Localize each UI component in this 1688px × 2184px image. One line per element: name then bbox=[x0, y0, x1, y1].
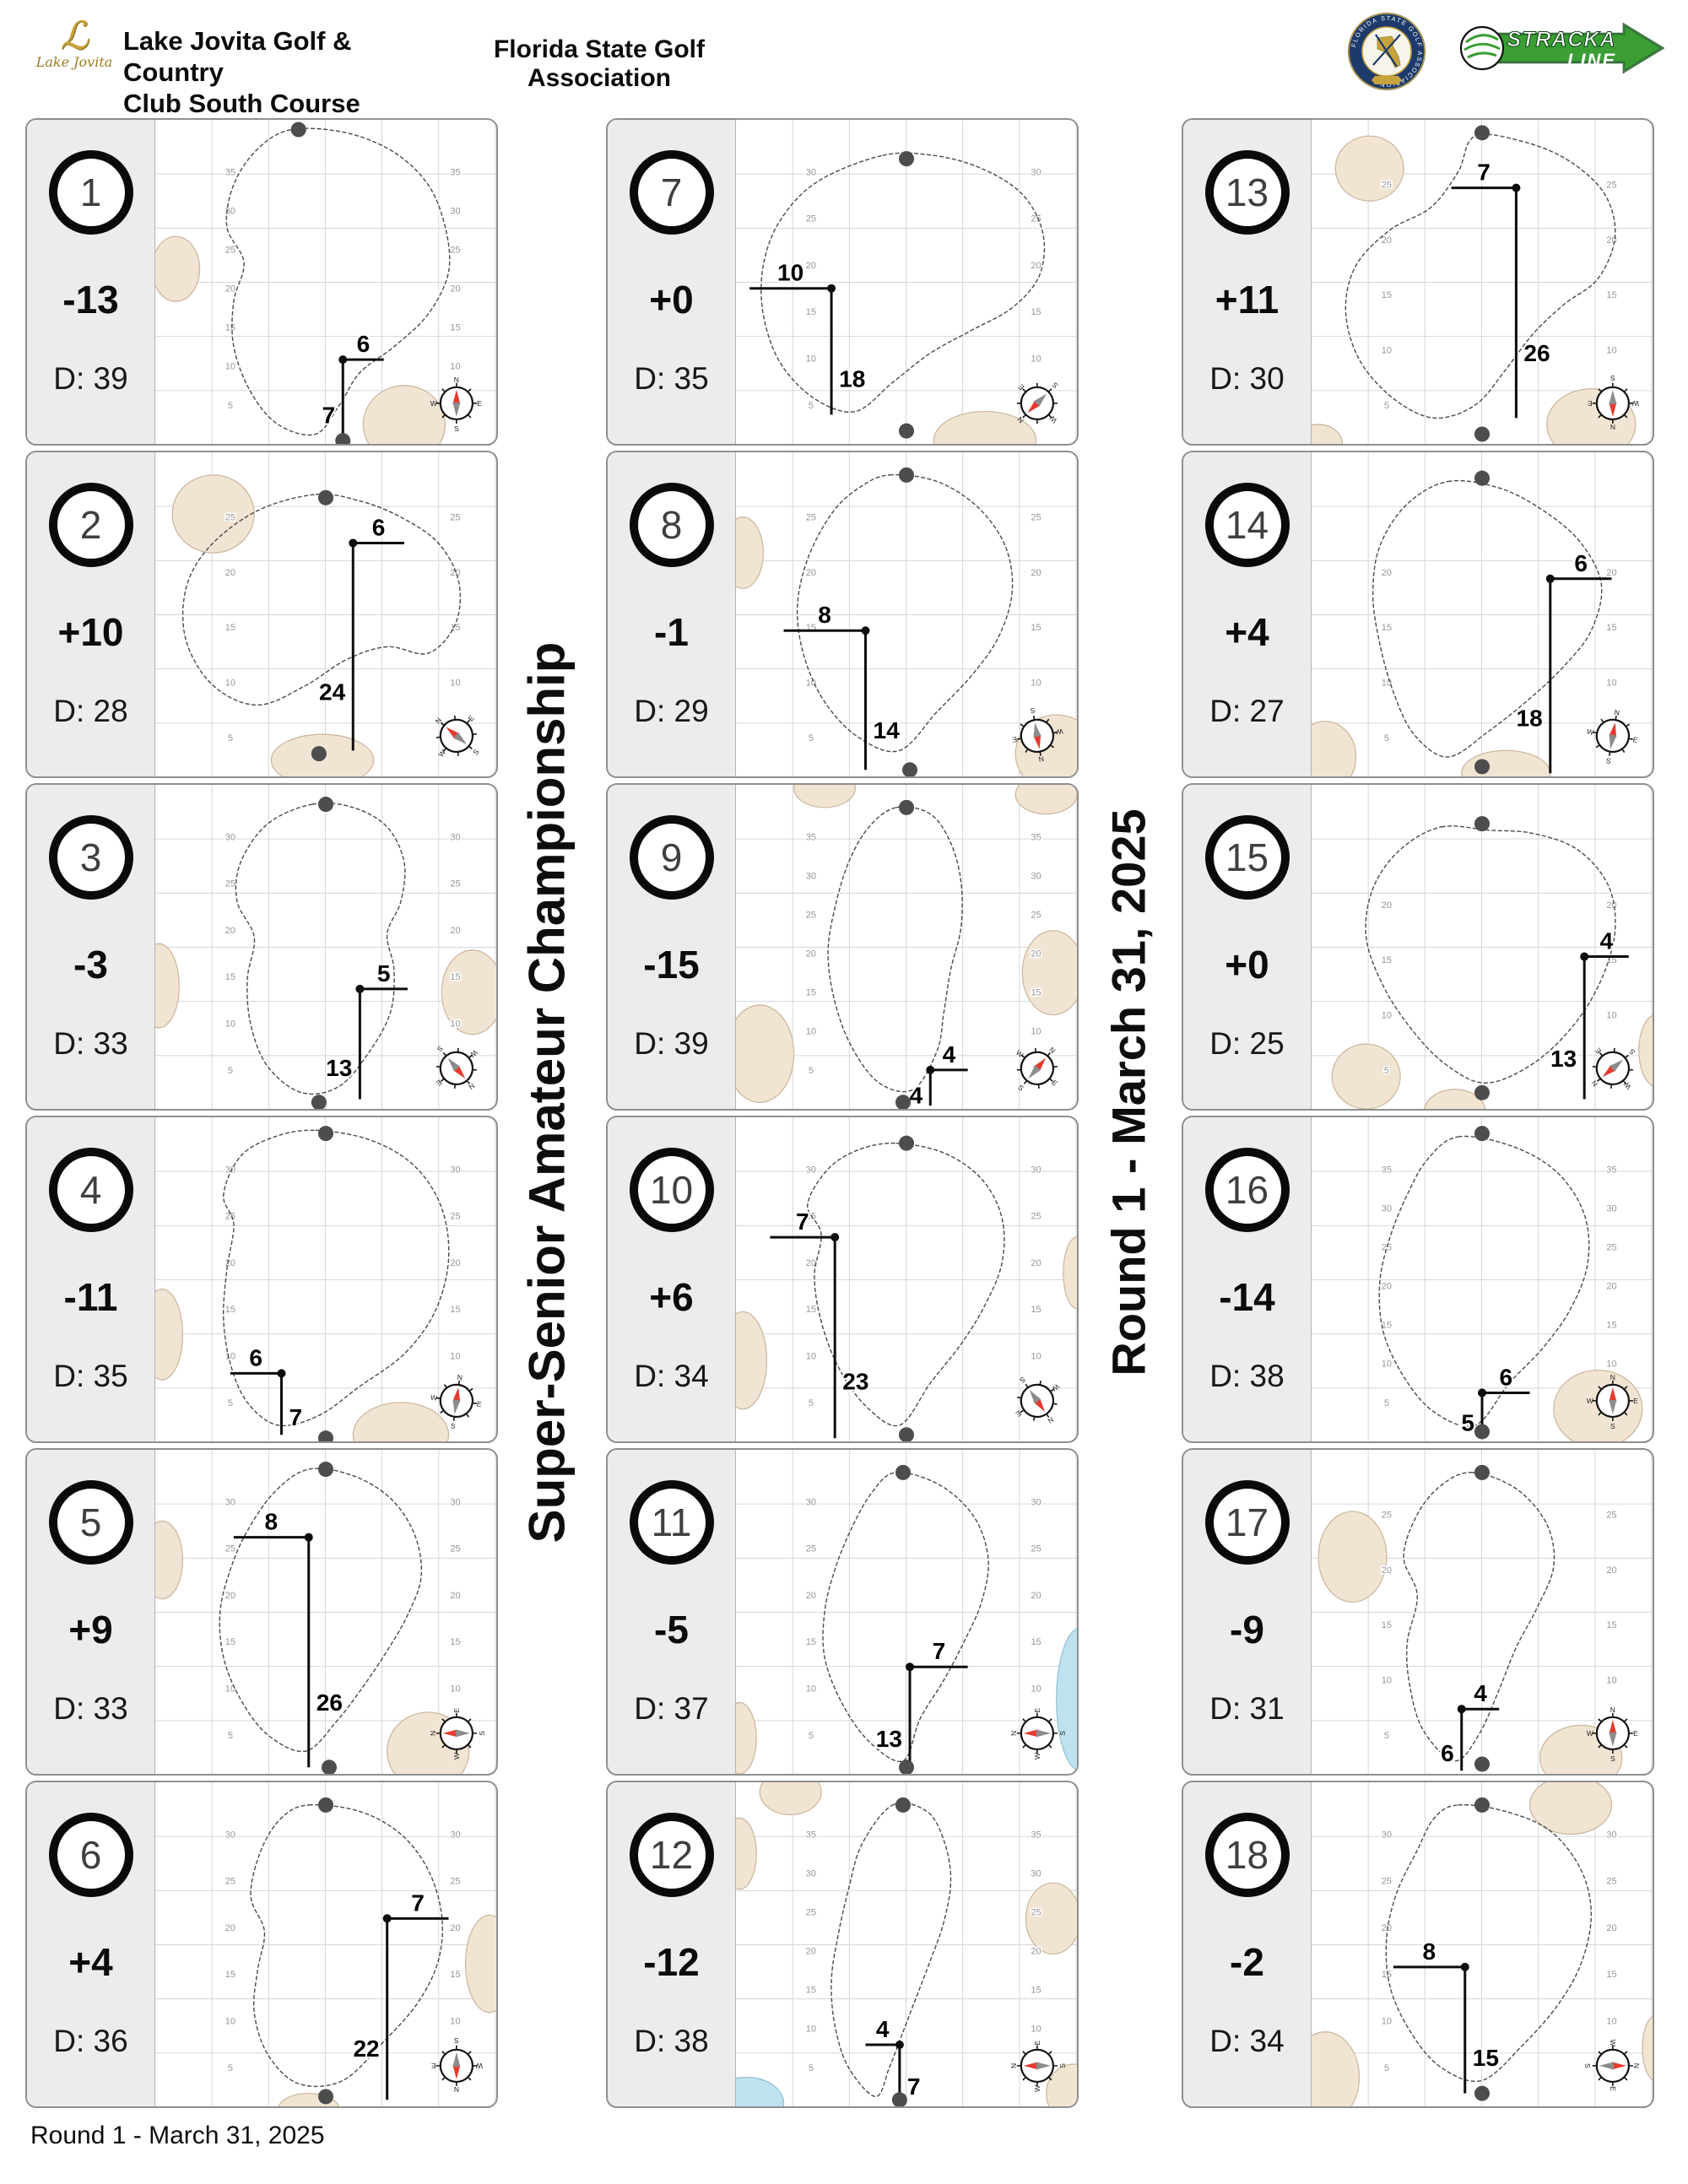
pin-distance-v-label: 4 bbox=[910, 1082, 923, 1108]
contour-label: 10 bbox=[225, 1351, 235, 1361]
hole-card: 12-12D: 383535303025252020151510105547NE… bbox=[606, 1781, 1079, 2108]
bunker bbox=[363, 386, 445, 444]
contour-label: 15 bbox=[225, 1305, 235, 1315]
green-depth-value: D: 38 bbox=[1209, 1359, 1284, 1394]
back-center-dot bbox=[318, 797, 333, 812]
contour-label: 30 bbox=[1031, 167, 1041, 177]
contour-label: 10 bbox=[806, 1027, 816, 1037]
stracka-word1: STRACKA bbox=[1507, 28, 1615, 51]
front-center-dot bbox=[1474, 1085, 1490, 1100]
hole-number-badge: 1 bbox=[49, 150, 133, 235]
svg-text:N: N bbox=[1632, 2063, 1641, 2068]
green-depth-value: D: 34 bbox=[634, 1359, 708, 1394]
contour-label: 15 bbox=[450, 1637, 460, 1647]
contour-label: 20 bbox=[806, 1591, 816, 1601]
pin-distance-v-label: 15 bbox=[1473, 2045, 1499, 2071]
contour-label: 25 bbox=[225, 245, 235, 255]
hole-number-badge: 7 bbox=[630, 150, 714, 235]
pin-dot bbox=[895, 2041, 904, 2049]
hole-elevation-value: +4 bbox=[68, 1939, 112, 1985]
contour-label: 20 bbox=[450, 1923, 460, 1933]
contour-label: 10 bbox=[450, 1351, 460, 1361]
bunker bbox=[1025, 1883, 1077, 1954]
hole-info-panel: 18-2D: 34 bbox=[1183, 1782, 1312, 2106]
contour-label: 25 bbox=[806, 214, 816, 224]
front-center-dot bbox=[899, 1427, 914, 1441]
hole-number-badge: 13 bbox=[1205, 150, 1290, 235]
contour-label: 15 bbox=[806, 307, 816, 317]
bunker bbox=[155, 1521, 182, 1598]
front-center-dot bbox=[1474, 1756, 1490, 1771]
contour-label: 10 bbox=[806, 2025, 816, 2035]
contour-label: 20 bbox=[450, 1591, 460, 1601]
contour-label: 25 bbox=[1031, 214, 1041, 224]
bunker bbox=[1332, 1044, 1400, 1109]
hole-elevation-value: +0 bbox=[1225, 942, 1269, 987]
svg-text:N: N bbox=[1009, 2063, 1018, 2068]
svg-text:W: W bbox=[1033, 1752, 1041, 1760]
hole-elevation-value: +11 bbox=[1215, 277, 1280, 322]
bunker bbox=[1639, 1015, 1653, 1086]
green-outline bbox=[1366, 826, 1615, 1084]
hole-info-panel: 11-5D: 37 bbox=[608, 1450, 736, 1774]
contour-label: 25 bbox=[1606, 1242, 1616, 1252]
svg-text:E: E bbox=[1632, 735, 1639, 744]
pin-distance-v-label: 7 bbox=[322, 403, 336, 429]
contour-label: 25 bbox=[450, 245, 460, 255]
back-center-dot bbox=[1474, 816, 1490, 831]
pin-dot bbox=[1512, 184, 1520, 192]
pin-dot bbox=[349, 538, 357, 547]
contour-label: 25 bbox=[1031, 910, 1041, 920]
contour-label: 25 bbox=[1031, 1212, 1041, 1222]
hole-elevation-value: +6 bbox=[649, 1274, 693, 1320]
contour-label: 20 bbox=[806, 261, 816, 271]
pin-distance-h-label: 6 bbox=[249, 1344, 262, 1370]
bunker bbox=[155, 943, 179, 1028]
back-center-dot bbox=[318, 1797, 333, 1813]
back-center-dot bbox=[899, 151, 914, 166]
bunker bbox=[1015, 785, 1077, 814]
contour-label: 5 bbox=[1384, 1731, 1389, 1741]
pin-distance-v-label: 7 bbox=[289, 1404, 302, 1430]
contour-label: 20 bbox=[1031, 949, 1041, 960]
contour-label: 35 bbox=[450, 167, 460, 177]
contour-label: 10 bbox=[1606, 1011, 1616, 1021]
green-depth-value: D: 29 bbox=[634, 694, 708, 729]
contour-label: 15 bbox=[1606, 290, 1616, 300]
contour-label: 25 bbox=[1606, 1877, 1616, 1887]
contour-label: 30 bbox=[806, 1497, 816, 1507]
contour-label: 15 bbox=[225, 1970, 235, 1980]
contour-label: 10 bbox=[1031, 1684, 1041, 1694]
contour-label: 30 bbox=[450, 832, 460, 842]
contour-label: 15 bbox=[806, 1305, 816, 1315]
contour-label: 30 bbox=[806, 871, 816, 881]
fsga-logo-icon: FLORIDA STATE GOLF ASSOCIATION bbox=[1347, 12, 1426, 91]
contour-label: 30 bbox=[225, 1830, 235, 1840]
hole-number: 3 bbox=[80, 835, 102, 880]
contour-label: 15 bbox=[1606, 1321, 1616, 1331]
contour-label: 30 bbox=[806, 167, 816, 177]
contour-label: 15 bbox=[806, 1637, 816, 1647]
hole-elevation-value: -11 bbox=[64, 1274, 118, 1320]
front-center-dot bbox=[899, 424, 914, 439]
pin-distance-v-label: 18 bbox=[839, 366, 865, 392]
front-center-dot bbox=[318, 2089, 333, 2104]
hole-elevation-value: -5 bbox=[654, 1607, 689, 1652]
front-center-dot bbox=[1474, 2086, 1490, 2101]
contour-label: 20 bbox=[225, 568, 235, 578]
green-depth-value: D: 39 bbox=[53, 361, 127, 397]
svg-text:W: W bbox=[1631, 399, 1639, 408]
compass-icon: NESW bbox=[418, 1029, 495, 1106]
compass-icon: NESW bbox=[999, 1361, 1074, 1438]
svg-text:S: S bbox=[1605, 756, 1612, 765]
svg-text:S: S bbox=[1050, 381, 1059, 390]
contour-label: 5 bbox=[809, 401, 814, 411]
contour-label: 20 bbox=[1382, 568, 1392, 578]
contour-label: 15 bbox=[1031, 1637, 1041, 1647]
pin-distance-h-label: 4 bbox=[943, 1041, 956, 1068]
hole-info-panel: 12-12D: 38 bbox=[608, 1782, 736, 2106]
svg-text:N: N bbox=[454, 2085, 459, 2094]
back-center-dot bbox=[899, 1136, 914, 1151]
pin-dot bbox=[277, 1369, 285, 1377]
hole-number-badge: 5 bbox=[49, 1480, 133, 1565]
hole-elevation-value: +4 bbox=[1225, 609, 1269, 655]
contour-label: 5 bbox=[809, 1731, 814, 1741]
hole-card: 17-9D: 3125252020151510105546NESW bbox=[1182, 1448, 1654, 1776]
hole-info-panel: 9-15D: 39 bbox=[608, 785, 736, 1109]
bunker bbox=[1318, 1511, 1387, 1602]
svg-text:W: W bbox=[1033, 2084, 1041, 2092]
svg-text:E: E bbox=[1609, 2086, 1617, 2091]
svg-text:E: E bbox=[1011, 735, 1018, 744]
svg-text:N: N bbox=[1610, 1373, 1615, 1381]
contour-label: 20 bbox=[450, 284, 460, 295]
front-center-dot bbox=[902, 762, 917, 776]
hole-number: 5 bbox=[80, 1500, 102, 1545]
green-map: 3030252520201515101055722NESW bbox=[155, 1782, 496, 2106]
bunker bbox=[1022, 931, 1077, 1015]
contour-label: 10 bbox=[225, 362, 235, 372]
pin-dot bbox=[861, 626, 869, 635]
bunker bbox=[1642, 2016, 1653, 2081]
hole-info-panel: 4-11D: 35 bbox=[27, 1117, 155, 1441]
hole-elevation-value: -1 bbox=[654, 609, 689, 655]
svg-text:S: S bbox=[454, 2036, 459, 2045]
green-depth-value: D: 39 bbox=[634, 1026, 708, 1062]
contour-label: 10 bbox=[1606, 1676, 1616, 1686]
green-map: 3535303025252020151510105565NESW bbox=[1312, 1117, 1653, 1441]
contour-label: 25 bbox=[806, 513, 816, 523]
hole-card: 3-3D: 333030252520201515101055513NESW bbox=[25, 783, 498, 1111]
green-outline bbox=[1386, 1805, 1591, 2082]
hole-number: 16 bbox=[1225, 1167, 1269, 1213]
hole-card: 10+6D: 343030252520201515101055723NESW bbox=[606, 1116, 1079, 1443]
hole-number: 4 bbox=[80, 1167, 102, 1213]
hole-info-panel: 7+0D: 35 bbox=[608, 120, 736, 444]
contour-label: 25 bbox=[450, 1212, 460, 1222]
hole-number: 7 bbox=[661, 170, 683, 215]
front-center-dot bbox=[335, 433, 350, 444]
svg-text:E: E bbox=[1633, 1397, 1638, 1405]
pin-distance-h-label: 10 bbox=[777, 260, 803, 286]
green-map: 30302525202015151010551018NESW bbox=[736, 120, 1077, 444]
hole-number-badge: 12 bbox=[630, 1813, 714, 1897]
green-map: 20201515101055618NESW bbox=[1312, 452, 1653, 776]
svg-text:S: S bbox=[1583, 2063, 1592, 2068]
pin-dot bbox=[830, 1233, 839, 1241]
contour-label: 10 bbox=[1382, 1676, 1392, 1686]
svg-text:E: E bbox=[452, 1708, 461, 1713]
contour-label: 15 bbox=[1606, 1620, 1616, 1630]
hole-number-badge: 6 bbox=[49, 1813, 133, 1897]
green-outline bbox=[251, 1805, 442, 2087]
green-depth-value: D: 27 bbox=[1209, 694, 1284, 729]
compass-icon: NESW bbox=[1583, 2040, 1641, 2091]
hole-number-badge: 9 bbox=[630, 815, 714, 900]
hole-elevation-value: +0 bbox=[649, 277, 693, 322]
contour-label: 5 bbox=[809, 1398, 814, 1408]
hole-elevation-value: -9 bbox=[1230, 1607, 1264, 1652]
contour-label: 25 bbox=[225, 1544, 235, 1554]
svg-text:W: W bbox=[430, 399, 438, 408]
contour-label: 10 bbox=[806, 354, 816, 364]
green-map: 20201515101055413NESW bbox=[1312, 785, 1653, 1109]
hole-number-badge: 17 bbox=[1205, 1480, 1290, 1565]
contour-label: 15 bbox=[225, 1637, 235, 1647]
contour-label: 5 bbox=[228, 1398, 233, 1408]
compass-icon: NESW bbox=[1582, 704, 1642, 770]
bunker bbox=[1312, 722, 1356, 776]
contour-label: 5 bbox=[1384, 1066, 1389, 1076]
contour-label: 10 bbox=[806, 1684, 816, 1694]
svg-text:S: S bbox=[1058, 2063, 1067, 2068]
contour-label: 30 bbox=[1031, 1497, 1041, 1507]
contour-label: 10 bbox=[1382, 346, 1392, 356]
hole-number: 12 bbox=[650, 1832, 693, 1878]
hole-number-badge: 2 bbox=[49, 483, 133, 567]
green-map: 252520201515101055726NESW bbox=[1312, 120, 1653, 444]
bunker bbox=[760, 1782, 821, 1814]
contour-label: 10 bbox=[225, 2016, 235, 2026]
pin-distance-h-label: 7 bbox=[933, 1638, 946, 1664]
bunker bbox=[1312, 2032, 1360, 2106]
green-map: 3030252520201515101055713NESW bbox=[736, 1450, 1077, 1774]
green-map: 3535303025252020151510105544NESW bbox=[736, 785, 1077, 1109]
front-center-dot bbox=[311, 746, 327, 761]
green-outline bbox=[235, 803, 404, 1095]
svg-text:E: E bbox=[1014, 1409, 1023, 1419]
hole-elevation-value: -13 bbox=[62, 277, 118, 322]
contour-label: 20 bbox=[806, 568, 816, 578]
hole-info-panel: 16-14D: 38 bbox=[1183, 1117, 1312, 1441]
svg-text:N: N bbox=[429, 1731, 437, 1736]
svg-text:W: W bbox=[475, 2062, 483, 2070]
svg-text:E: E bbox=[1033, 2041, 1041, 2046]
contour-label: 35 bbox=[1031, 1830, 1041, 1840]
hole-number-badge: 11 bbox=[630, 1480, 714, 1565]
contour-label: 25 bbox=[1031, 513, 1041, 523]
contour-label: 20 bbox=[806, 1258, 816, 1268]
contour-label: 25 bbox=[1382, 181, 1392, 191]
pin-distance-v-label: 7 bbox=[907, 2073, 921, 2100]
bunker bbox=[736, 1818, 756, 1889]
pin-distance-h-label: 8 bbox=[818, 602, 831, 628]
contour-label: 25 bbox=[1382, 1877, 1392, 1887]
contour-label: 35 bbox=[806, 1830, 816, 1840]
bunker bbox=[155, 1289, 182, 1380]
contour-label: 15 bbox=[1031, 988, 1041, 998]
footer-round-label: Round 1 - March 31, 2025 bbox=[30, 2122, 325, 2150]
svg-text:W: W bbox=[1587, 1397, 1594, 1405]
svg-text:S: S bbox=[471, 748, 481, 757]
back-center-dot bbox=[1474, 1465, 1490, 1480]
bunker bbox=[1063, 1237, 1077, 1308]
bunker bbox=[155, 236, 200, 301]
club-logo-icon: ℒ bbox=[34, 17, 115, 54]
contour-label: 20 bbox=[1606, 1565, 1616, 1576]
contour-label: 10 bbox=[806, 1351, 816, 1361]
pin-distance-h-label: 7 bbox=[1477, 159, 1491, 186]
back-center-dot bbox=[899, 800, 914, 815]
hole-number: 6 bbox=[80, 1832, 102, 1878]
hole-info-panel: 6+4D: 36 bbox=[27, 1782, 155, 2106]
green-map: 3030252520201515101055826NESW bbox=[155, 1450, 496, 1774]
pin-distance-v-label: 18 bbox=[1517, 705, 1543, 732]
green-depth-value: D: 36 bbox=[53, 2024, 127, 2059]
svg-text:E: E bbox=[476, 1399, 482, 1408]
contour-label: 15 bbox=[450, 323, 460, 333]
pin-dot bbox=[1580, 953, 1588, 961]
contour-label: 30 bbox=[1606, 1203, 1616, 1214]
bunker bbox=[736, 1703, 756, 1774]
contour-label: 25 bbox=[225, 879, 235, 889]
hole-card: 14+4D: 2720201515101055618NESW bbox=[1182, 451, 1654, 778]
hole-elevation-value: -12 bbox=[643, 1939, 699, 1985]
svg-text:S: S bbox=[1058, 1731, 1067, 1736]
green-outline bbox=[224, 1130, 449, 1425]
pin-distance-h-label: 5 bbox=[377, 960, 391, 987]
back-center-dot bbox=[899, 468, 914, 483]
contour-label: 15 bbox=[1031, 1986, 1041, 1996]
contour-label: 20 bbox=[225, 1923, 235, 1933]
contour-label: 10 bbox=[1606, 678, 1616, 689]
contour-label: 15 bbox=[450, 1970, 460, 1980]
contour-label: 10 bbox=[1031, 354, 1041, 364]
green-depth-value: D: 33 bbox=[53, 1026, 127, 1062]
pin-distance-v-label: 6 bbox=[1441, 1740, 1454, 1766]
contour-label: 5 bbox=[228, 401, 233, 411]
contour-label: 15 bbox=[1031, 307, 1041, 317]
green-map: 3030252520201515101055513NESW bbox=[155, 785, 496, 1109]
back-center-dot bbox=[318, 1126, 333, 1141]
hole-info-panel: 10+6D: 34 bbox=[608, 1117, 736, 1441]
contour-label: 25 bbox=[1606, 181, 1616, 191]
green-map: 252520201515101055624NESW bbox=[155, 452, 496, 776]
pin-dot bbox=[355, 985, 364, 993]
contour-label: 20 bbox=[1606, 1282, 1616, 1292]
pin-distance-h-label: 7 bbox=[411, 1889, 425, 1916]
water-hazard bbox=[1057, 1628, 1077, 1770]
contour-label: 15 bbox=[1382, 1620, 1392, 1630]
contour-label: 15 bbox=[1382, 623, 1392, 633]
contour-label: 35 bbox=[1382, 1165, 1392, 1175]
svg-text:W: W bbox=[452, 1752, 461, 1760]
contour-label: 10 bbox=[1031, 678, 1041, 689]
contour-label: 10 bbox=[225, 678, 235, 689]
front-center-dot bbox=[311, 1095, 327, 1109]
contour-label: 25 bbox=[1382, 1511, 1392, 1521]
green-outline bbox=[1379, 1137, 1589, 1427]
pin-distance-v-label: 22 bbox=[353, 2035, 379, 2062]
hole-card: 11-5D: 373030252520201515101055713NESW bbox=[606, 1448, 1079, 1776]
green-depth-value: D: 34 bbox=[1209, 2024, 1284, 2059]
hole-card: 4-11D: 35303025252020151510105567NESW bbox=[25, 1116, 498, 1443]
contour-label: 25 bbox=[1606, 1511, 1616, 1521]
contour-label: 35 bbox=[1031, 832, 1041, 842]
contour-label: 15 bbox=[1382, 1321, 1392, 1331]
green-outline bbox=[1373, 481, 1602, 757]
pin-distance-v-label: 13 bbox=[1550, 1046, 1577, 1072]
green-depth-value: D: 33 bbox=[53, 1691, 127, 1727]
bunker bbox=[736, 517, 763, 588]
pin-distance-v-label: 13 bbox=[326, 1055, 352, 1081]
bunker bbox=[1530, 1782, 1612, 1834]
hole-info-panel: 3-3D: 33 bbox=[27, 785, 155, 1109]
bunker bbox=[1462, 750, 1550, 776]
contour-label: 30 bbox=[225, 832, 235, 842]
contour-label: 15 bbox=[1606, 623, 1616, 633]
hole-number: 10 bbox=[650, 1167, 693, 1213]
contour-label: 30 bbox=[450, 1165, 460, 1175]
svg-text:S: S bbox=[478, 1731, 486, 1736]
contour-label: 35 bbox=[806, 832, 816, 842]
round-vertical-label: Round 1 - March 31, 2025 bbox=[1077, 0, 1180, 2184]
contour-label: 5 bbox=[809, 2063, 814, 2073]
pin-dot bbox=[338, 355, 347, 364]
hole-info-panel: 2+10D: 28 bbox=[27, 452, 155, 776]
svg-text:E: E bbox=[1588, 399, 1593, 408]
contour-label: 20 bbox=[1382, 1565, 1392, 1576]
front-center-dot bbox=[1474, 1424, 1490, 1439]
hole-number-badge: 16 bbox=[1205, 1148, 1290, 1232]
hole-card: 2+10D: 28252520201515101055624NESW bbox=[25, 451, 498, 778]
contour-label: 30 bbox=[1031, 1868, 1041, 1879]
hole-elevation-value: -14 bbox=[1219, 1274, 1274, 1320]
green-depth-value: D: 25 bbox=[1209, 1026, 1284, 1062]
hole-number-badge: 8 bbox=[630, 483, 714, 567]
green-map: 3535303025252020151510105547NESW bbox=[736, 1782, 1077, 2106]
contour-label: 15 bbox=[225, 323, 235, 333]
contour-label: 10 bbox=[450, 362, 460, 372]
pin-distance-v-label: 5 bbox=[1461, 1409, 1474, 1435]
pin-dot bbox=[926, 1066, 934, 1074]
green-depth-value: D: 31 bbox=[1209, 1691, 1284, 1727]
svg-text:W: W bbox=[1609, 2040, 1617, 2047]
contour-label: 10 bbox=[450, 1019, 460, 1029]
contour-label: 20 bbox=[1382, 1923, 1392, 1933]
pin-distance-v-label: 23 bbox=[842, 1369, 868, 1395]
contour-label: 20 bbox=[1382, 1282, 1392, 1292]
hole-card: 7+0D: 3530302525202015151010551018NESW bbox=[606, 118, 1079, 446]
contour-label: 30 bbox=[1606, 1830, 1616, 1840]
front-center-dot bbox=[322, 1760, 337, 1774]
hole-number-badge: 18 bbox=[1205, 1813, 1290, 1897]
back-center-dot bbox=[895, 1797, 911, 1813]
